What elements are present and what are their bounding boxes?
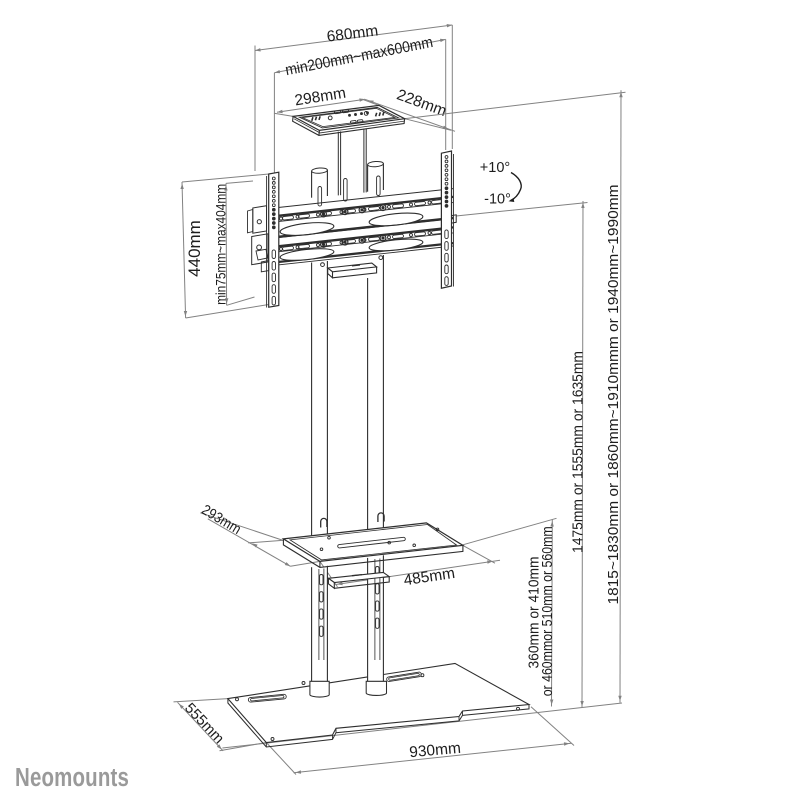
svg-text:Neomounts: Neomounts: [15, 764, 129, 792]
svg-text:-10°: -10°: [484, 192, 511, 208]
svg-text:440mm: 440mm: [185, 220, 204, 277]
svg-text:1475mm or 1555mm or 1635mm: 1475mm or 1555mm or 1635mm: [569, 351, 586, 553]
svg-text:1815~1830mm or 1860mm~1910mmm: 1815~1830mm or 1860mm~1910mmm or 1940mm~…: [605, 185, 622, 605]
svg-text:or 460mmor 510mm or 560mm: or 460mmor 510mm or 560mm: [539, 526, 556, 696]
svg-text:min75mm~max404mm: min75mm~max404mm: [214, 184, 229, 305]
svg-text:+10°: +10°: [480, 160, 510, 176]
